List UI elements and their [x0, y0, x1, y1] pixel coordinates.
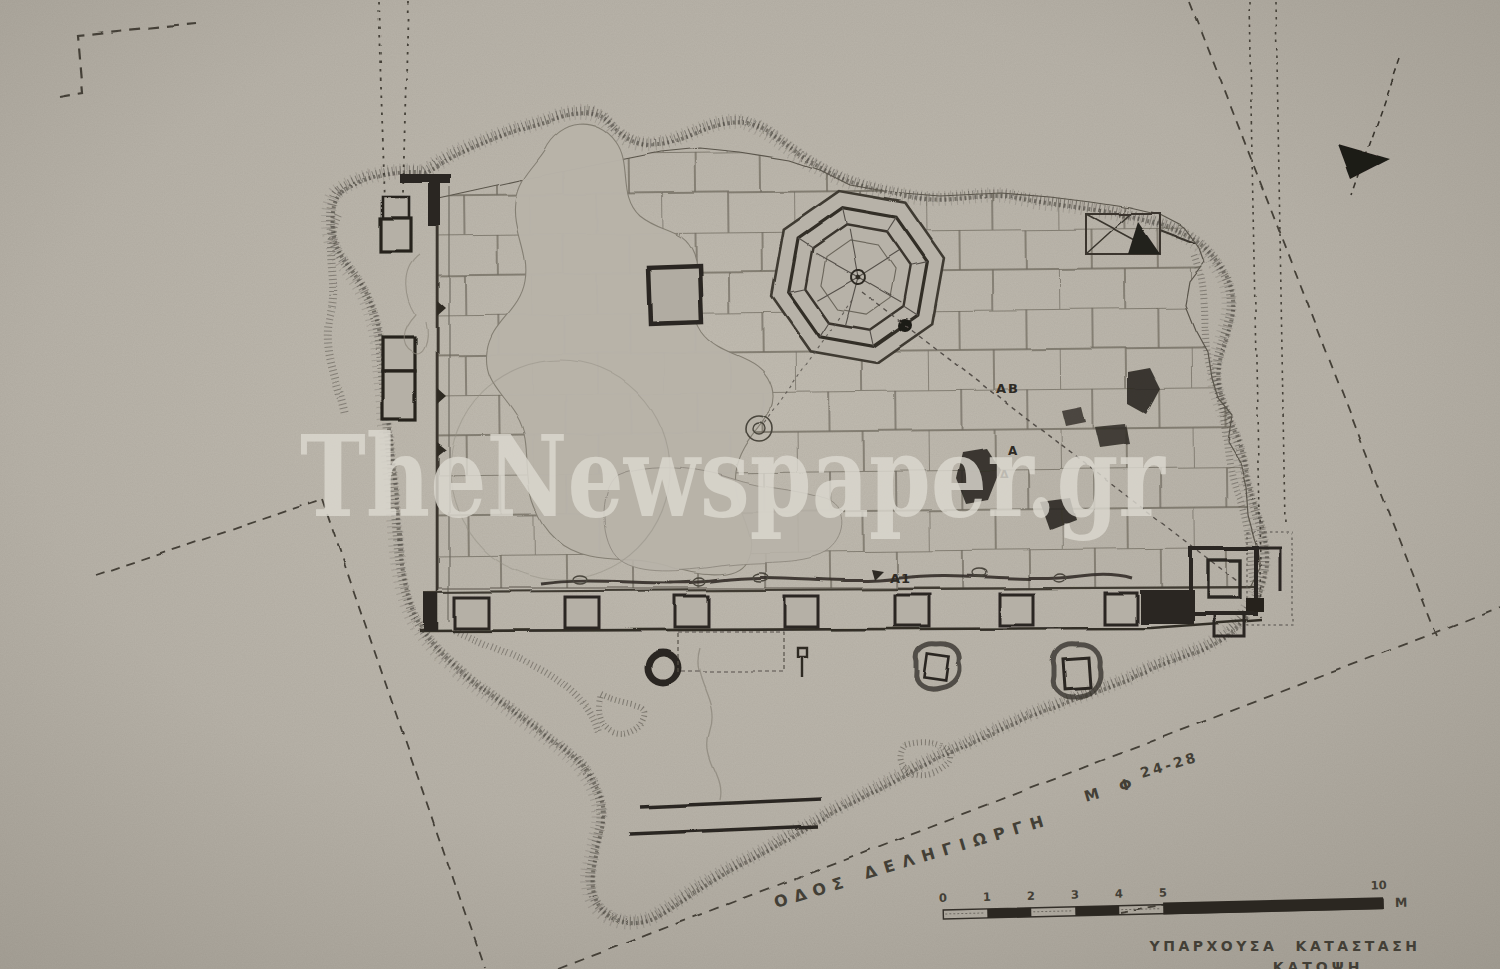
scale-tick-0: 0 — [939, 891, 947, 905]
scale-tick-2: 2 — [1027, 889, 1035, 903]
caption-line2: ΚΑΤΟΨΗ — [1273, 959, 1364, 969]
label-a1: Α1 — [890, 571, 911, 586]
square-base-structure — [648, 266, 702, 324]
scale-tick-3: 3 — [1071, 888, 1079, 902]
scanned-plan-page: ΑΒ Α Δ Α1 ΟΔΟΣ ΔΕΛΗΓΙΩΡΓΗ Μ Φ 24-28 0 1 … — [0, 0, 1500, 969]
watermark-text: TheNewspaper.gr — [300, 411, 1167, 542]
stylobate-dark-block — [1140, 590, 1194, 624]
scale-tick-5: 5 — [1159, 886, 1167, 900]
scale-unit: Μ — [1395, 895, 1408, 910]
stylobate-end-block — [424, 592, 438, 631]
se-dark-fill — [1246, 598, 1264, 612]
caption-line1: ΥΠΑΡΧΟΥΣΑ ΚΑΤΑΣΤΑΣΗ — [1149, 938, 1421, 954]
label-ab: ΑΒ — [996, 381, 1020, 396]
wall-dark-bar — [400, 173, 450, 182]
scale-tick-10: 10 — [1371, 878, 1387, 892]
scale-tick-4: 4 — [1115, 887, 1123, 901]
site-plan-drawing: ΑΒ Α Δ Α1 ΟΔΟΣ ΔΕΛΗΓΙΩΡΓΗ Μ Φ 24-28 0 1 … — [0, 0, 1500, 969]
scale-tick-1: 1 — [983, 890, 991, 904]
wall-dark-segment — [428, 180, 440, 226]
